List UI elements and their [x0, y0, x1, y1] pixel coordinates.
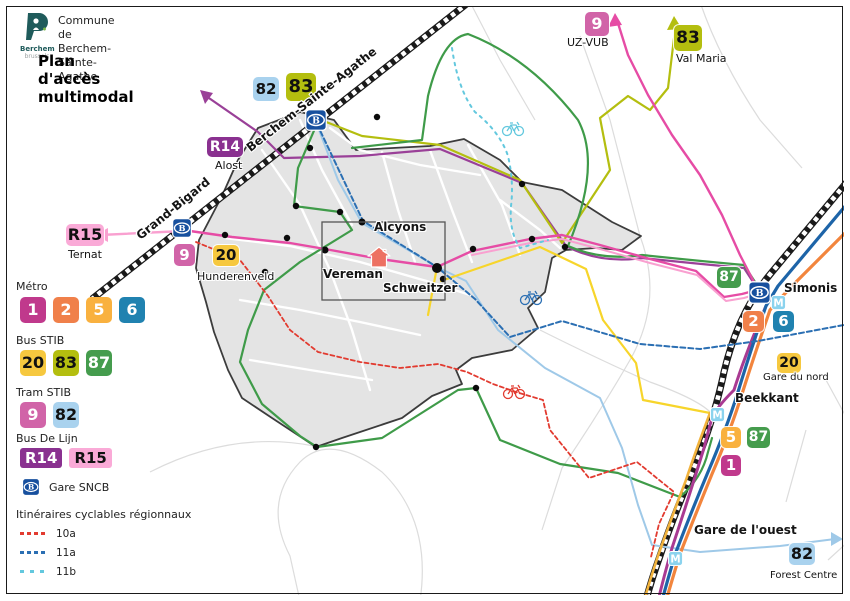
legend-gare-label: Gare SNCB	[49, 481, 109, 494]
arrow-83-valmaria	[667, 16, 682, 30]
legend-badge-5: 5	[86, 297, 112, 323]
legend-bus-stib-row: 208387	[20, 350, 112, 376]
bicycle-icon-11b	[503, 122, 524, 136]
sncb-icon	[22, 478, 40, 496]
frame-mask-right	[844, 0, 850, 601]
legend-badge-6: 6	[119, 297, 145, 323]
cycle-route-label: 11b	[56, 566, 76, 578]
arrow-r15-ternat	[95, 228, 108, 242]
legend-de-lijn-row: R14R15	[20, 448, 112, 468]
legend-cycling-row-11b: 11b	[20, 562, 76, 581]
legend-badge-2: 2	[53, 297, 79, 323]
tram-9-line-north	[617, 20, 755, 284]
bicycle-icon-10a	[504, 385, 525, 399]
frame-mask-left	[0, 0, 6, 601]
arrow-82-forest	[831, 532, 843, 546]
legend-badge-87: 87	[86, 350, 112, 376]
legend-badge-R14: R14	[20, 448, 62, 468]
metro-2-line	[666, 226, 850, 601]
legend-cycling-rows: 10a11a11b	[20, 524, 76, 581]
commune-logo-icon	[22, 12, 52, 42]
legend-badge-1: 1	[20, 297, 46, 323]
legend-metro-label: Métro	[16, 280, 48, 293]
cycle-route-label: 11a	[56, 547, 76, 559]
legend-badge-83: 83	[53, 350, 79, 376]
arrow-r14-alost	[200, 90, 213, 104]
frame-mask-top	[0, 0, 850, 6]
legend-metro-row: 1256	[20, 297, 145, 323]
legend-tram-stib-row: 982	[20, 402, 79, 428]
commune-line1: Commune de	[58, 14, 115, 41]
legend-badge-9: 9	[20, 402, 46, 428]
cycle-route-label: 10a	[56, 528, 76, 540]
legend-badge-20: 20	[20, 350, 46, 376]
legend-cycling-row-11a: 11a	[20, 543, 76, 562]
legend-gare-sncb: Gare SNCB	[22, 478, 109, 496]
legend-cycling-row-10a: 10a	[20, 524, 76, 543]
legend-tram-stib-label: Tram STIB	[16, 386, 71, 399]
legend-badge-82: 82	[53, 402, 79, 428]
legend-cycling-label: Itinéraires cyclables régionnaux	[16, 508, 191, 521]
legend-de-lijn-label: Bus De Lijn	[16, 432, 78, 445]
legend-badge-R15: R15	[69, 448, 111, 468]
frame-mask-bottom	[0, 595, 850, 601]
cycle-route-sample	[20, 570, 46, 573]
cycle-route-sample	[20, 551, 46, 554]
page-title: Plan d'accès multimodal	[38, 52, 134, 106]
cycle-route-sample	[20, 532, 46, 535]
arrow-9-uzvub	[608, 13, 622, 27]
multimodal-access-map: B M	[0, 0, 850, 601]
legend-bus-stib-label: Bus STIB	[16, 334, 64, 347]
